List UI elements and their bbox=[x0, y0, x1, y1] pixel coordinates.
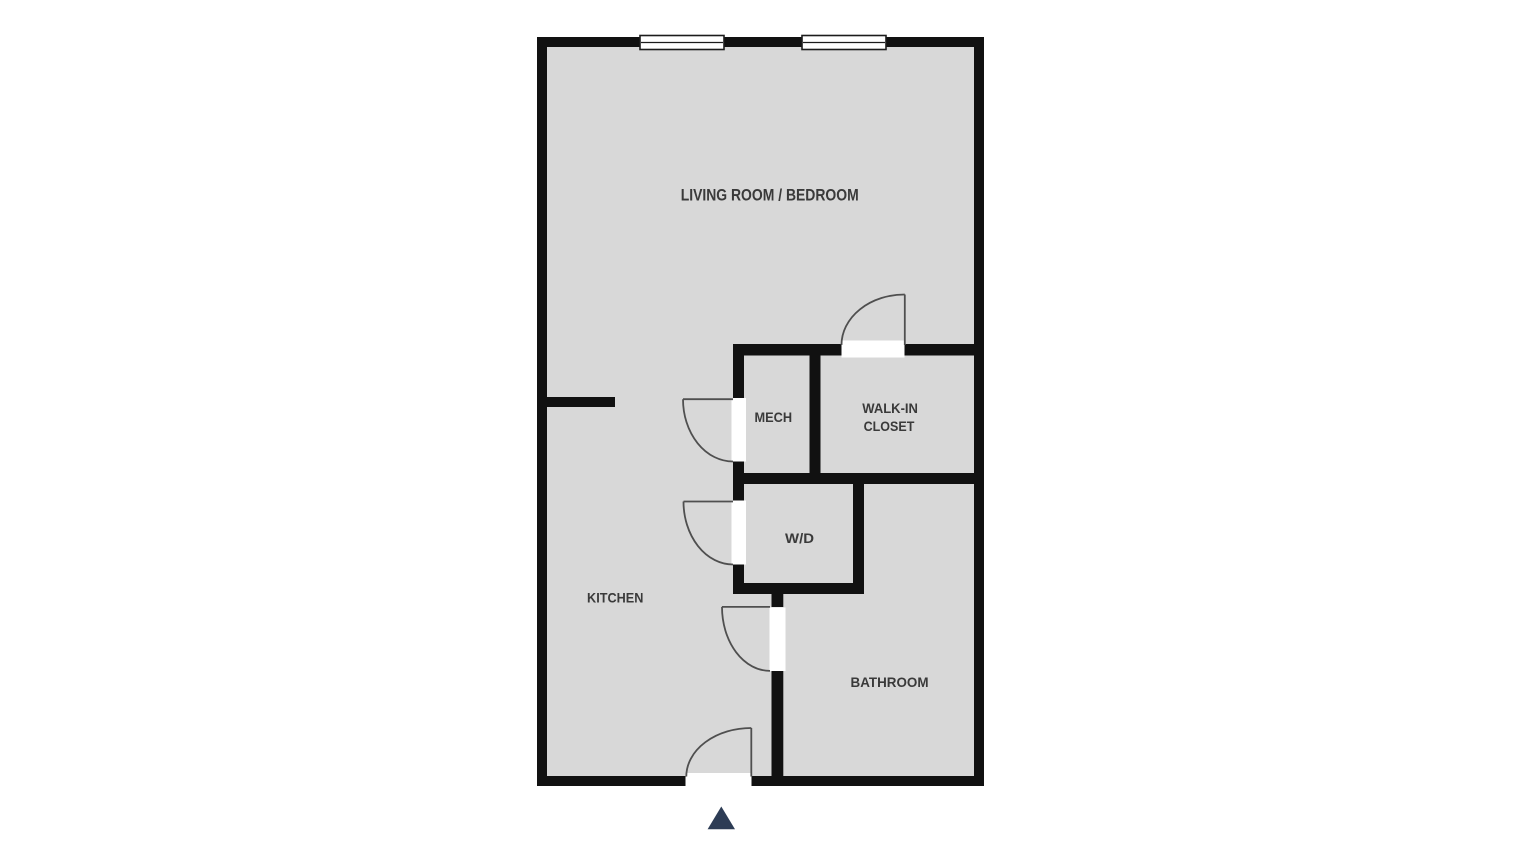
svg-text:KITCHEN: KITCHEN bbox=[587, 590, 643, 605]
svg-text:BATHROOM: BATHROOM bbox=[851, 675, 929, 690]
svg-text:W/D: W/D bbox=[785, 531, 814, 546]
svg-text:WALK-IN: WALK-IN bbox=[862, 401, 918, 416]
svg-text:CLOSET: CLOSET bbox=[864, 419, 915, 434]
svg-text:MECH: MECH bbox=[755, 410, 793, 425]
svg-text:LIVING ROOM / BEDROOM: LIVING ROOM / BEDROOM bbox=[681, 187, 859, 205]
